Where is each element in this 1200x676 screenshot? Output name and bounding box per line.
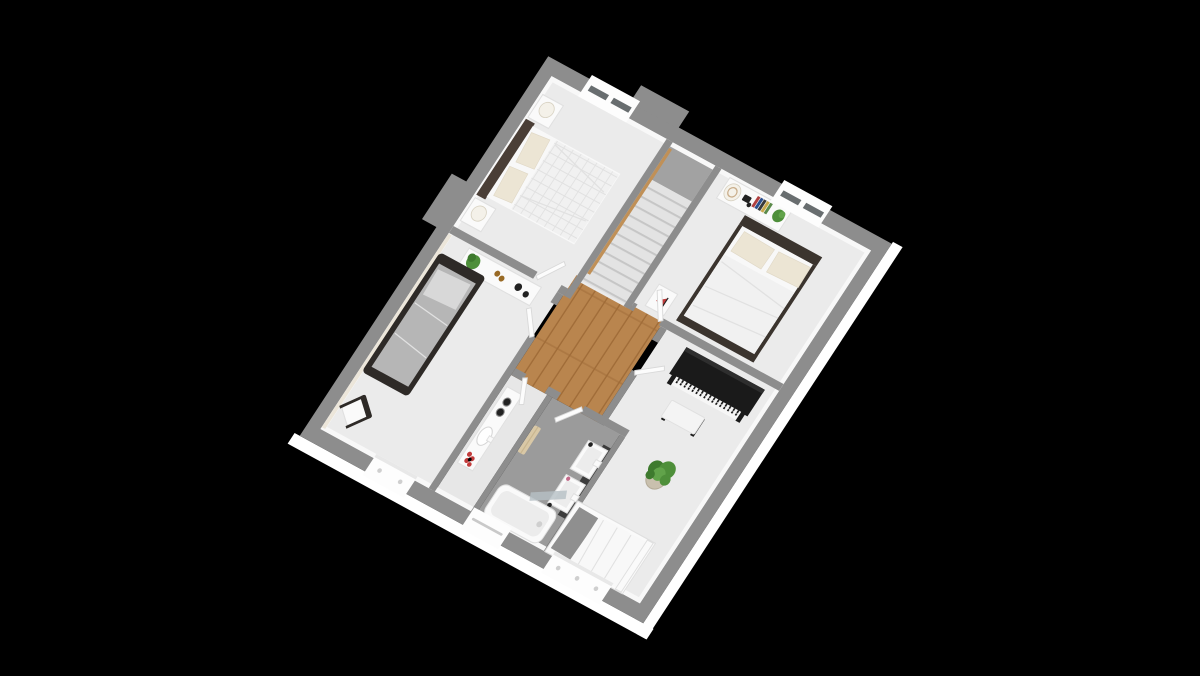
floor-plan-svg: 3D isometric floor-plan render of an upp… xyxy=(0,0,1200,676)
bedroom3-door xyxy=(657,290,663,322)
floor-plan-render: 3D isometric floor-plan render of an upp… xyxy=(0,0,1200,676)
